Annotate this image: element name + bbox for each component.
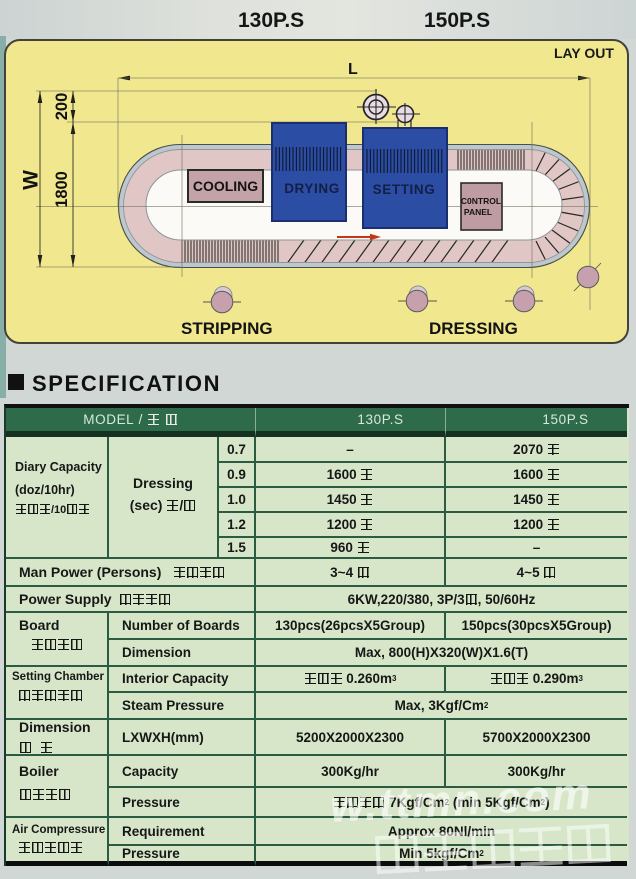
svg-text:W: W (20, 170, 43, 190)
svg-text:PANEL: PANEL (464, 207, 492, 217)
svg-text:DRYING: DRYING (284, 181, 340, 196)
svg-text:LAY OUT: LAY OUT (554, 45, 614, 61)
svg-text:1800: 1800 (53, 171, 71, 208)
svg-text:DRESSING: DRESSING (429, 319, 518, 338)
svg-text:SETTING: SETTING (373, 182, 436, 197)
svg-text:COOLING: COOLING (193, 178, 258, 194)
svg-text:STRIPPING: STRIPPING (181, 319, 273, 338)
svg-text:200: 200 (53, 93, 71, 121)
svg-text:L: L (348, 61, 358, 78)
svg-text:C0NTROL: C0NTROL (461, 196, 501, 206)
